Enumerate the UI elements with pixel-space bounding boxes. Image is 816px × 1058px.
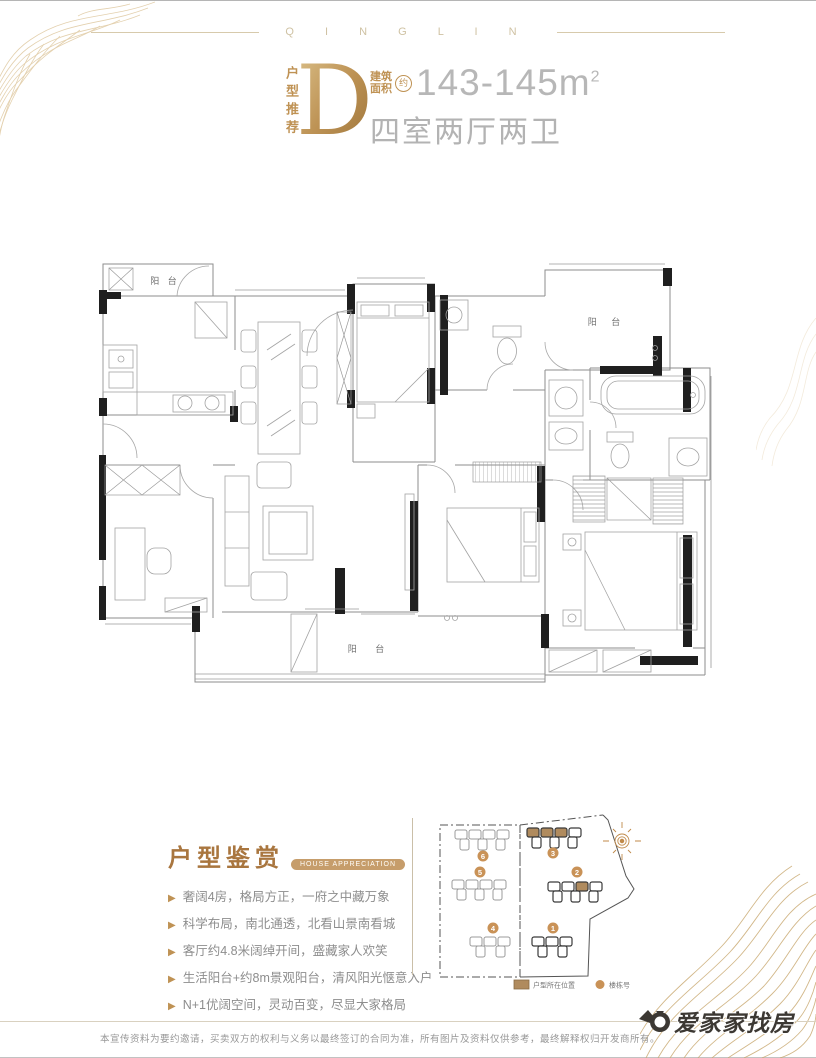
building-cluster-3 <box>527 828 581 848</box>
brand-band: Q I N G L I N <box>0 26 816 38</box>
legend-unit-label: 户型所在位置 <box>533 981 575 990</box>
bullet-arrow-icon: ▶ <box>168 947 176 958</box>
appreciation-item: ▶科学布局，南北通透，北看山景南看城 <box>168 913 423 932</box>
balcony-top-left-label: 阳 台 <box>150 275 180 286</box>
brand-rule-left <box>91 32 259 33</box>
building-cluster-1 <box>532 937 572 957</box>
svg-text:3: 3 <box>551 849 555 858</box>
legend-building-label: 楼栋号 <box>609 981 630 990</box>
type-letter-d: D <box>294 48 376 148</box>
svg-text:6: 6 <box>481 852 485 861</box>
floor-plan: 阳 台 阳 台 阳 台 <box>95 250 715 690</box>
bullet-arrow-icon: ▶ <box>168 974 176 985</box>
appreciation-item: ▶N+1优阔空间，灵动百变，尽显大家格局 <box>168 994 423 1013</box>
svg-text:D: D <box>296 48 373 148</box>
svg-text:5: 5 <box>478 868 482 877</box>
section-divider <box>412 818 413 975</box>
appreciation-badge: HOUSE APPRECIATION <box>291 859 405 870</box>
area-row: 建筑 面积 约 143-145m2 <box>370 62 601 104</box>
wardrobes <box>105 268 683 524</box>
header-info: 建筑 面积 约 143-145m2 四室两厅两卫 <box>370 62 601 151</box>
appreciation-item: ▶生活阳台+约8m景观阳台，清风阳光惬意入户 <box>168 967 423 986</box>
approx-mark: 约 <box>395 75 412 92</box>
appreciation-section: 户型鉴赏 HOUSE APPRECIATION ▶奢阔4房，格局方正，一府之中藏… <box>168 838 423 1021</box>
compass-icon <box>603 822 641 860</box>
poster-page: Q I N G L I N 户型推荐 D 建筑 面积 约 143-145m2 四… <box>0 0 816 1058</box>
appreciation-item: ▶客厅约4.8米阔绰开间，盛藏家人欢笑 <box>168 940 423 959</box>
brand-logo: 爱家家找房 <box>636 1004 794 1038</box>
decorative-swirl-right <box>756 318 816 468</box>
layout-text: 四室两厅两卫 <box>370 107 601 151</box>
brand-rule-right <box>557 32 725 33</box>
walls-black <box>99 268 698 665</box>
building-cluster-4 <box>470 937 510 957</box>
brand-logo-icon <box>636 1005 674 1037</box>
bullet-arrow-icon: ▶ <box>168 1001 176 1012</box>
brand-logo-text: 爱家家找房 <box>674 1004 794 1038</box>
building-cluster-6 <box>455 830 509 850</box>
disclaimer-text: 本宣传资料为要约邀请，买卖双方的权利与义务以最终签订的合同为准，所有图片及资料仅… <box>90 1031 670 1045</box>
area-value: 143-145m2 <box>416 62 601 104</box>
area-prefix-line1: 建筑 <box>370 71 392 83</box>
bullet-arrow-icon: ▶ <box>168 920 176 931</box>
brand-letters: Q I N G L I N <box>285 26 530 38</box>
balcony-top-right-label: 阳 台 <box>588 316 627 327</box>
svg-text:2: 2 <box>575 868 579 877</box>
area-prefix-line2: 面积 <box>370 83 392 95</box>
site-legend: 户型所在位置 楼栋号 <box>514 980 630 990</box>
appreciation-list: ▶奢阔4房，格局方正，一府之中藏万象 ▶科学布局，南北通透，北看山景南看城 ▶客… <box>168 886 423 1013</box>
building-cluster-2 <box>548 882 602 902</box>
appreciation-item: ▶奢阔4房，格局方正，一府之中藏万象 <box>168 886 423 905</box>
building-cluster-5 <box>452 880 506 900</box>
appreciation-title: 户型鉴赏 <box>168 838 284 873</box>
svg-text:1: 1 <box>551 924 555 933</box>
area-exponent: 2 <box>591 69 601 86</box>
area-prefix: 建筑 面积 <box>370 71 392 95</box>
site-plan: 6 5 4 3 2 1 户型所在位置 楼栋号 <box>430 812 665 1007</box>
bullet-arrow-icon: ▶ <box>168 893 176 904</box>
balcony-bottom-label: 阳 台 <box>348 643 393 654</box>
